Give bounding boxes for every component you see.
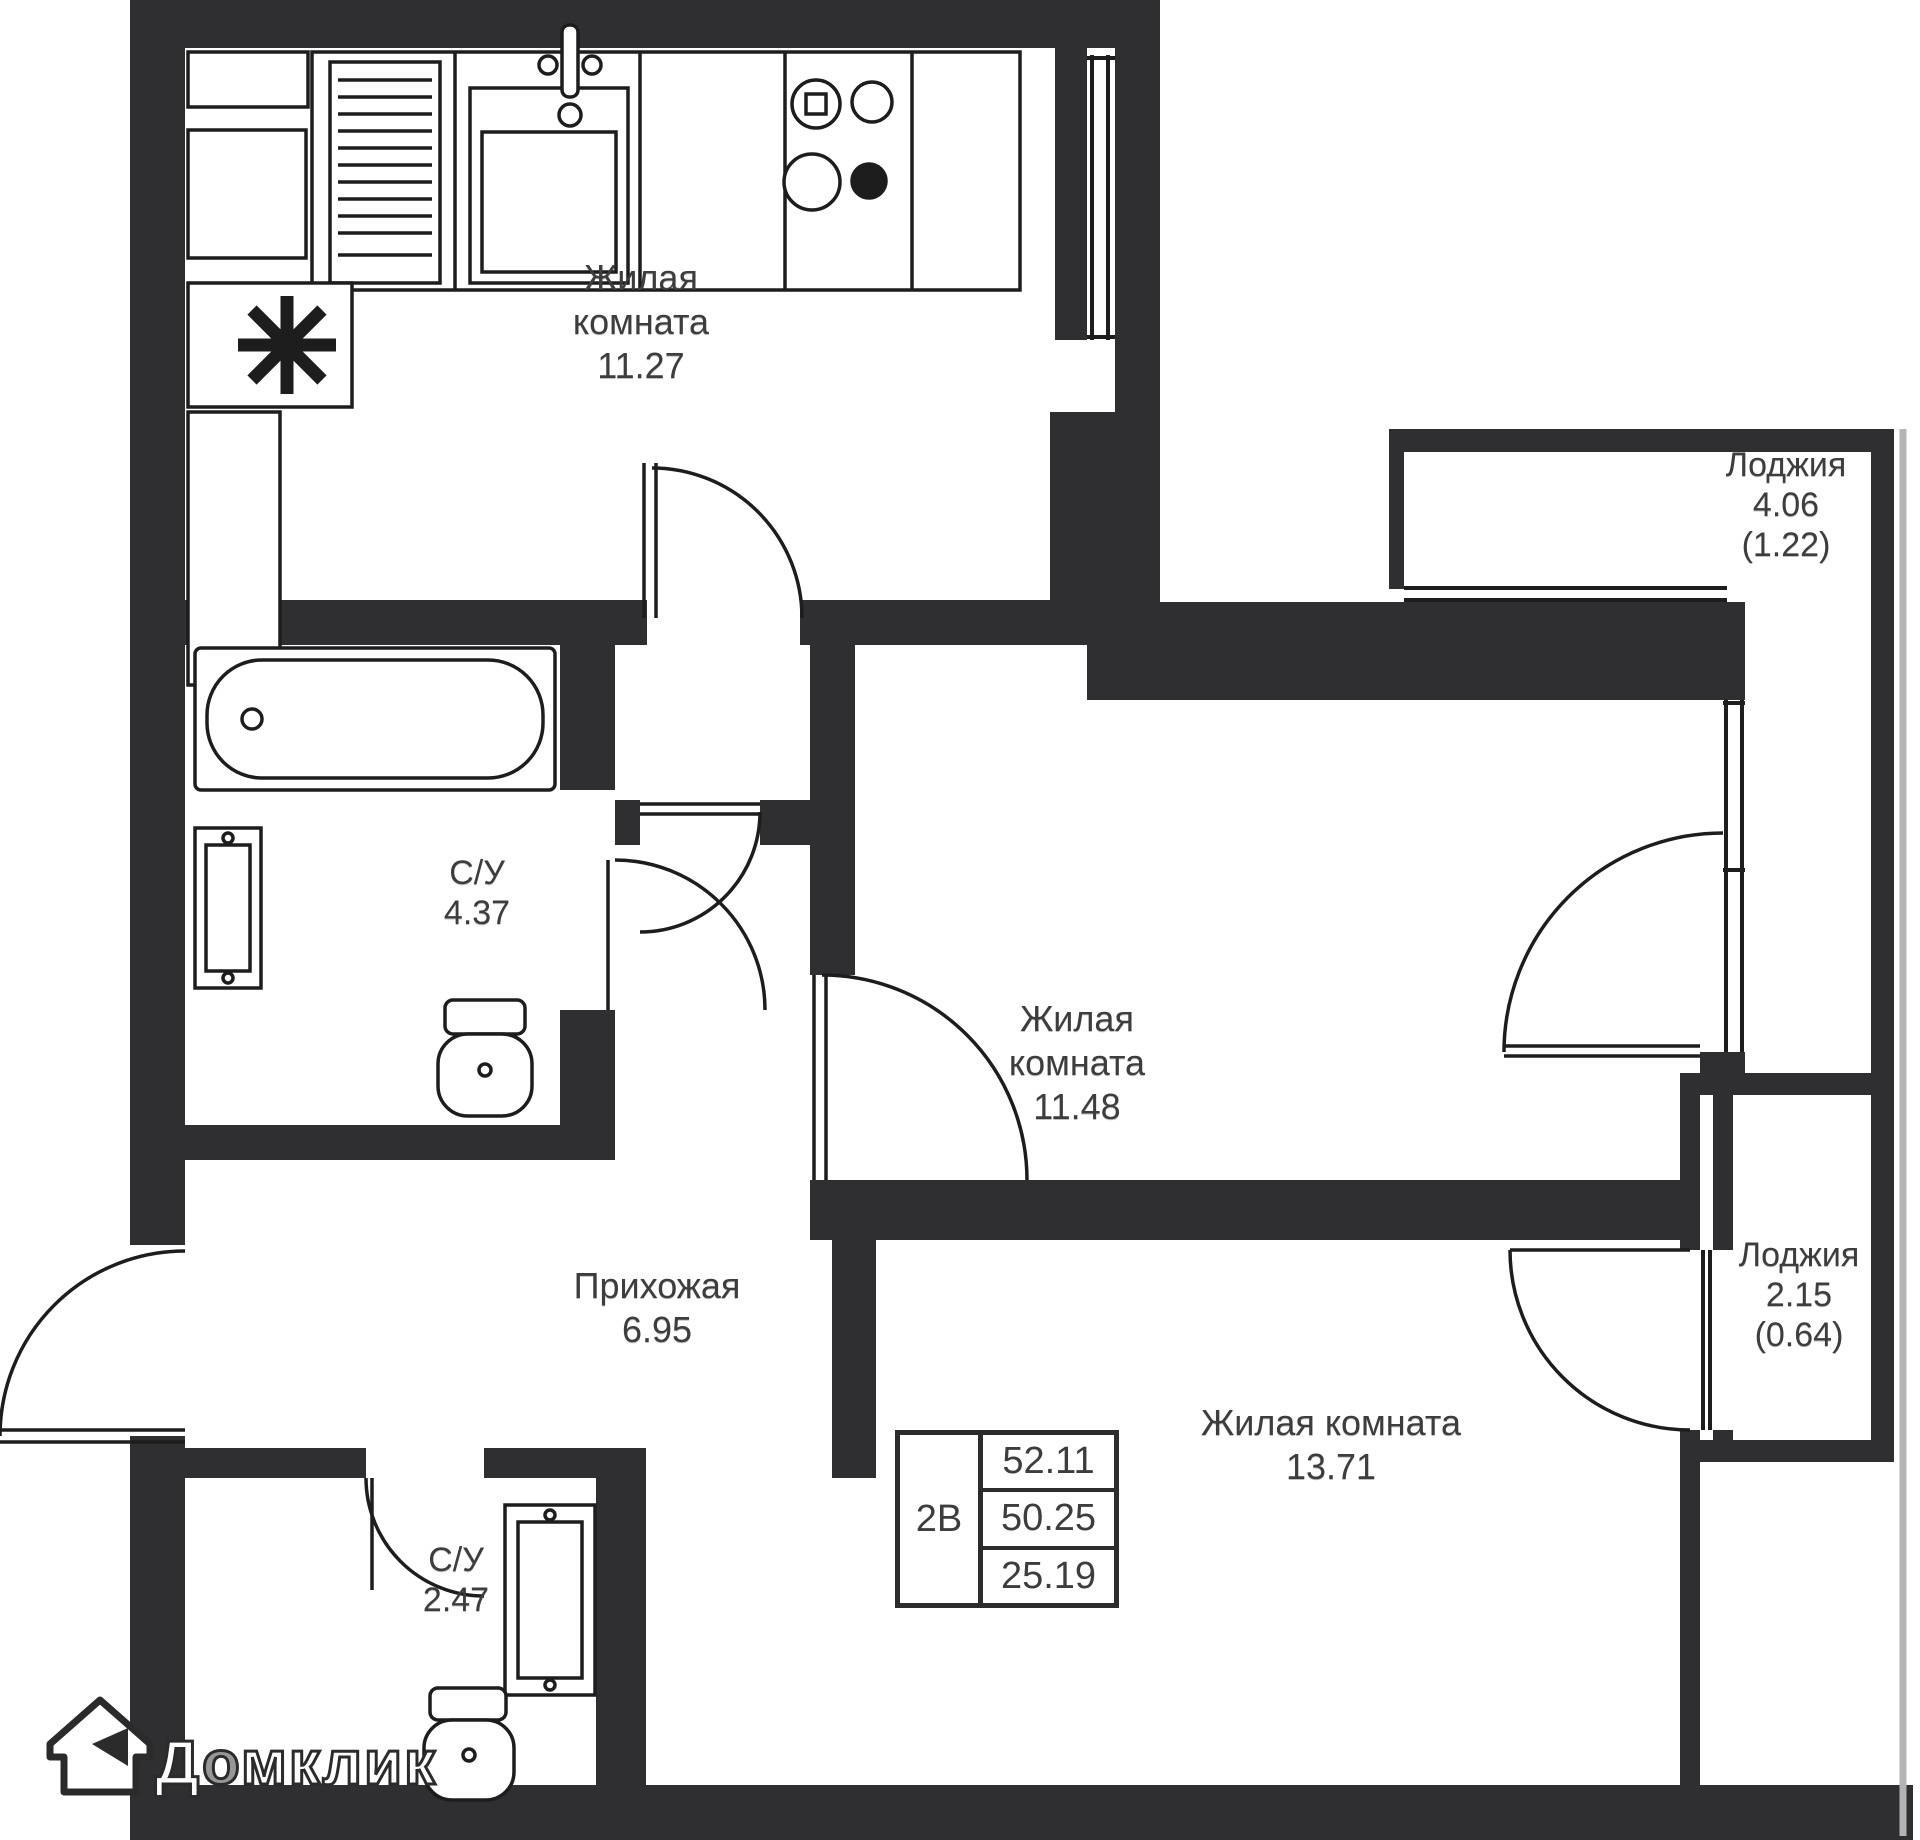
- duct-strip: [188, 412, 280, 685]
- wall-left-upper: [130, 0, 185, 1245]
- shaft-box-2: [188, 130, 306, 258]
- shaft-box-1: [188, 52, 308, 107]
- wall-band-room1148-top: [1087, 602, 1727, 700]
- window-kitchen-bay: [1087, 55, 1115, 340]
- wall-loggia-divider: [1680, 1073, 1894, 1095]
- door-entrance: [0, 1251, 185, 1442]
- fridge-icon: [330, 62, 440, 283]
- stamp-area: 50.25: [983, 1488, 1114, 1545]
- wall-room1371-left: [832, 1240, 876, 1478]
- fan-icon: [238, 296, 336, 394]
- label-hallway: Прихожая 6.95: [574, 1264, 741, 1352]
- label-room-11-48: Жилая комната 11.48: [1009, 997, 1145, 1129]
- label-room-13-71: Жилая комната 13.71: [1201, 1401, 1461, 1489]
- domclick-wordmark: Домклик: [155, 1729, 437, 1798]
- wall-loggia215-bottom: [1700, 1440, 1894, 1462]
- door-su437: [608, 860, 765, 1010]
- stamp-total-area: 52.11: [983, 1435, 1114, 1488]
- wall-loggia-outer-right: [1871, 429, 1894, 1462]
- watermark-logo: Домклик: [50, 1700, 437, 1798]
- wall-window-pier: [1055, 48, 1087, 340]
- door-loggia215-balcony: [1510, 1250, 1690, 1430]
- toilet-su247-icon: [424, 1688, 514, 1800]
- door-room1127: [644, 463, 802, 618]
- wall-pier-south: [1050, 412, 1160, 608]
- window-loggia406-horizontal: [1404, 588, 1727, 600]
- wall-loggia406-corner: [1723, 602, 1745, 700]
- wall-band-room1371-top: [810, 1180, 1700, 1240]
- washer-icon: [195, 828, 261, 988]
- wall-su437-bottom: [130, 1125, 615, 1160]
- wall-loggia406-left: [1389, 429, 1404, 589]
- stamp-living-area: 25.19: [983, 1546, 1114, 1603]
- wall-su247-right: [596, 1448, 646, 1785]
- label-loggia-2-15: Лоджия 2.15 (0.64): [1739, 1235, 1859, 1355]
- apartment-stamp: 2В 52.11 50.25 25.19: [895, 1430, 1119, 1608]
- window-room1371-balcony: [1703, 1250, 1710, 1430]
- door-loggia406-balcony: [1504, 833, 1723, 1056]
- washer2-icon: [505, 1505, 595, 1695]
- wall-su437-right-upper: [560, 645, 615, 790]
- wall-room1371-right-lower: [1680, 1430, 1700, 1785]
- window-room1148-balcony: [1723, 700, 1745, 1052]
- wall-room1127-bottom-right: [800, 600, 1087, 645]
- kitchen-fixtures: [312, 25, 1020, 290]
- label-su-2-47: С/У 2.47: [423, 1540, 489, 1620]
- wall-hallway-room1148-upper: [810, 645, 855, 975]
- wall-room1371-right-upper: [1680, 1095, 1700, 1250]
- label-loggia-4-06: Лоджия 4.06 (1.22): [1726, 445, 1846, 565]
- door-room1148: [814, 975, 1027, 1180]
- wall-su247-top-left: [174, 1448, 366, 1478]
- wall-top: [130, 0, 1160, 48]
- label-room-11-27: Жилая комната 11.27: [573, 256, 709, 388]
- label-su-4-37: С/У 4.37: [444, 853, 510, 933]
- stamp-areas: 52.11 50.25 25.19: [983, 1435, 1114, 1603]
- floor-plan: Домклик Жилая комната 11.27 Лоджия 4.06 …: [0, 0, 1920, 1840]
- bathtub-icon: [195, 648, 555, 790]
- wall-su437-right-lower: [560, 1010, 615, 1125]
- toilet-su437-icon: [438, 1000, 532, 1116]
- stamp-unit-type: 2В: [900, 1435, 983, 1603]
- wall-loggia215-left-upper: [1713, 1095, 1733, 1250]
- wall-nook-left: [615, 800, 640, 845]
